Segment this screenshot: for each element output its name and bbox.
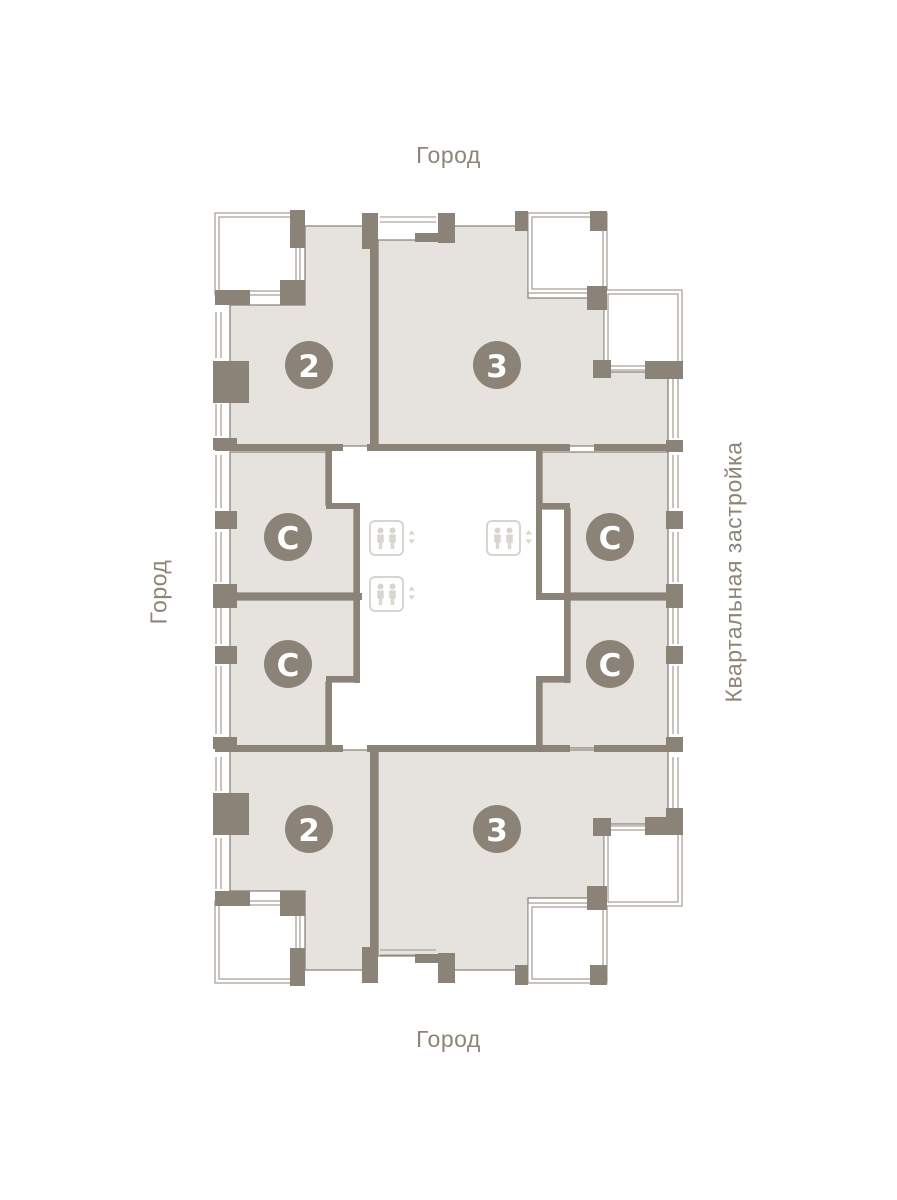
apartment-s-mid-left-upper-badge[interactable]: С: [264, 513, 312, 561]
apartment-3-bottom-right-badge[interactable]: 3: [473, 805, 521, 853]
apartment-badge-label: 3: [486, 813, 508, 849]
apartment-badge-label: 2: [298, 349, 320, 385]
balcony: [604, 826, 682, 906]
apartment-s-mid-right-lower-badge[interactable]: С: [586, 640, 634, 688]
apartment-s-mid-right-upper-badge[interactable]: С: [586, 513, 634, 561]
apartment-3-top-right-badge[interactable]: 3: [473, 341, 521, 389]
apartment-badge-label: С: [277, 521, 300, 557]
floor-plan-page: Город Город Город Квартальная застройка: [0, 0, 897, 1200]
balcony: [604, 290, 682, 370]
elevator-icon: [370, 521, 415, 555]
elevator-icon: [370, 577, 415, 611]
apartment-badge-label: 2: [298, 813, 320, 849]
floor-plan-svg: 23СССС23: [0, 0, 897, 1200]
apartment-badge-label: 3: [486, 349, 508, 385]
apartment-2-bottom-left-badge[interactable]: 2: [285, 805, 333, 853]
apartment-s-mid-left-lower-badge[interactable]: С: [264, 640, 312, 688]
apartment-badge-label: С: [599, 648, 622, 684]
apartment-badge-label: С: [277, 648, 300, 684]
elevator-icon: [487, 521, 532, 555]
apartment-badge-label: С: [599, 521, 622, 557]
apartment-2-top-left-badge[interactable]: 2: [285, 341, 333, 389]
elevators-layer: [370, 521, 532, 611]
